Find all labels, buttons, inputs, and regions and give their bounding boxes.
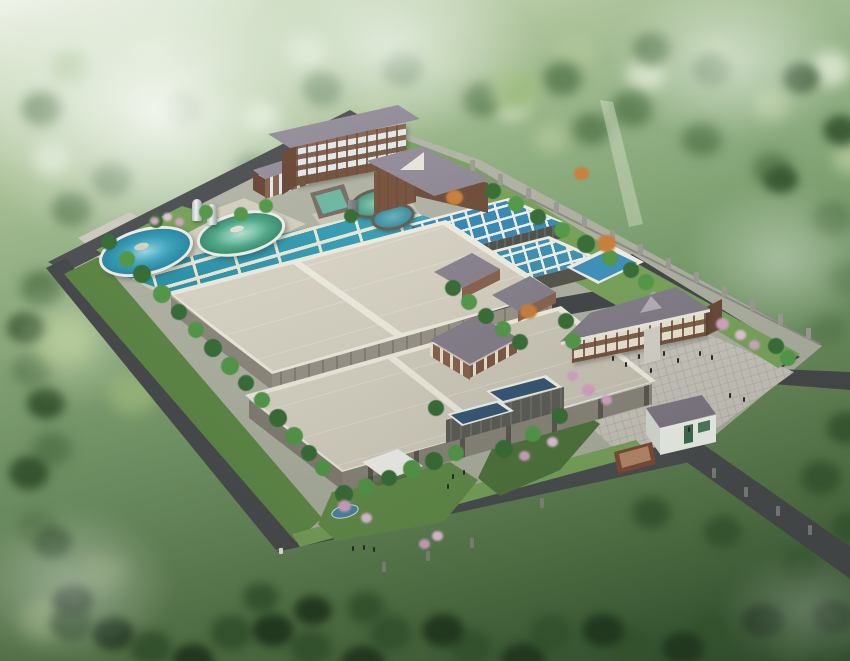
light-grade-overlay — [0, 0, 850, 661]
aerial-rendering-water-treatment-plant — [0, 0, 850, 661]
